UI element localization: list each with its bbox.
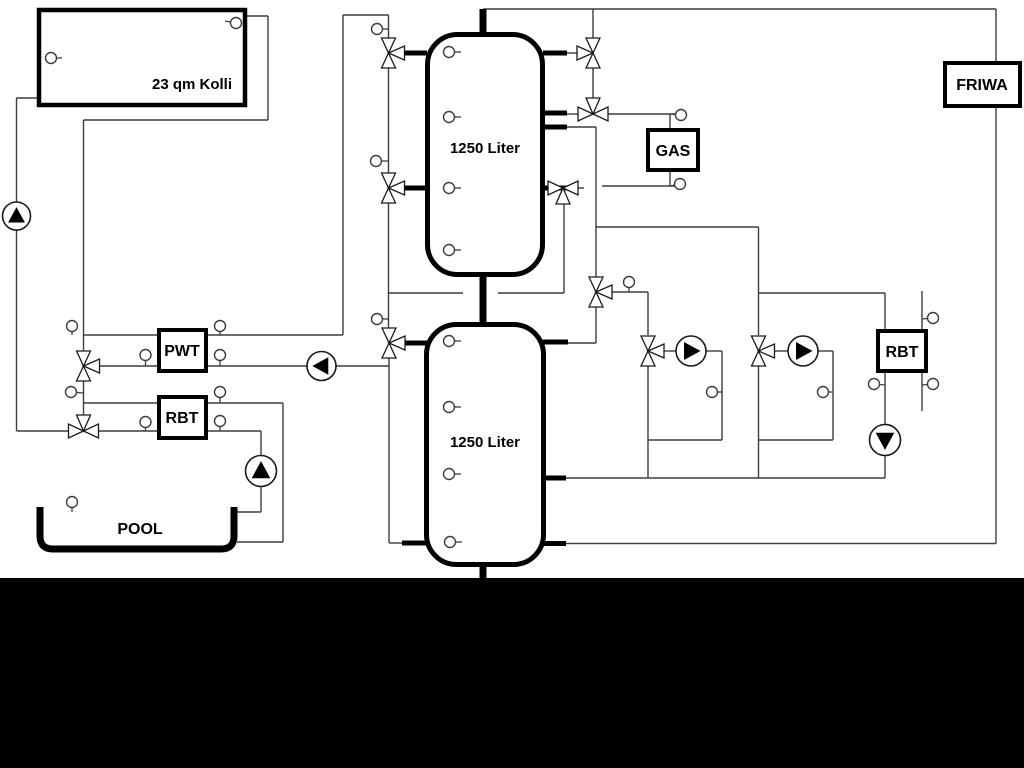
rbt-heat-exchanger-left-label: RBT <box>166 410 199 427</box>
temperature-sensor-icon <box>707 387 718 398</box>
temperature-sensor-icon <box>67 321 78 332</box>
temperature-sensor-icon <box>444 245 455 256</box>
temperature-sensor-icon <box>372 314 383 325</box>
temperature-sensor-icon <box>444 336 455 347</box>
temperature-sensor-icon <box>624 277 635 288</box>
solar-collector-label: 23 qm Kolli <box>152 76 232 93</box>
buffer-tank-top-label: 1250 Liter <box>450 140 520 157</box>
bottom-black-bar <box>0 578 1024 768</box>
temperature-sensor-icon <box>928 379 939 390</box>
temperature-sensor-icon <box>928 313 939 324</box>
temperature-sensor-icon <box>372 24 383 35</box>
temperature-sensor-icon <box>215 387 226 398</box>
schematic-svg: 23 qm KolliGASFRIWAPWTRBTRBT1250 Liter12… <box>0 0 1024 768</box>
temperature-sensor-icon <box>444 47 455 58</box>
temperature-sensor-icon <box>371 156 382 167</box>
temperature-sensor-icon <box>818 387 829 398</box>
temperature-sensor-icon <box>445 537 456 548</box>
friwa-station-label: FRIWA <box>956 77 1008 94</box>
temperature-sensor-icon <box>46 53 57 64</box>
temperature-sensor-icon <box>140 417 151 428</box>
temperature-sensor-icon <box>215 350 226 361</box>
temperature-sensor-icon <box>67 497 78 508</box>
swimming-pool-label: POOL <box>117 521 163 538</box>
temperature-sensor-icon <box>675 179 686 190</box>
temperature-sensor-icon <box>869 379 880 390</box>
temperature-sensor-icon <box>444 112 455 123</box>
hydraulic-schematic-diagram: 23 qm KolliGASFRIWAPWTRBTRBT1250 Liter12… <box>0 0 1024 768</box>
rbt-heat-exchanger-right-label: RBT <box>886 344 919 361</box>
temperature-sensor-icon <box>215 321 226 332</box>
temperature-sensor-icon <box>676 110 687 121</box>
temperature-sensor-icon <box>215 416 226 427</box>
temperature-sensor-icon <box>444 183 455 194</box>
buffer-tank-bottom-label: 1250 Liter <box>450 434 520 451</box>
gas-boiler-label: GAS <box>656 143 691 160</box>
temperature-sensor-icon <box>231 18 242 29</box>
pwt-heat-exchanger-label: PWT <box>164 343 200 360</box>
temperature-sensor-icon <box>444 469 455 480</box>
temperature-sensor-icon <box>66 387 77 398</box>
temperature-sensor-icon <box>140 350 151 361</box>
temperature-sensor-icon <box>444 402 455 413</box>
